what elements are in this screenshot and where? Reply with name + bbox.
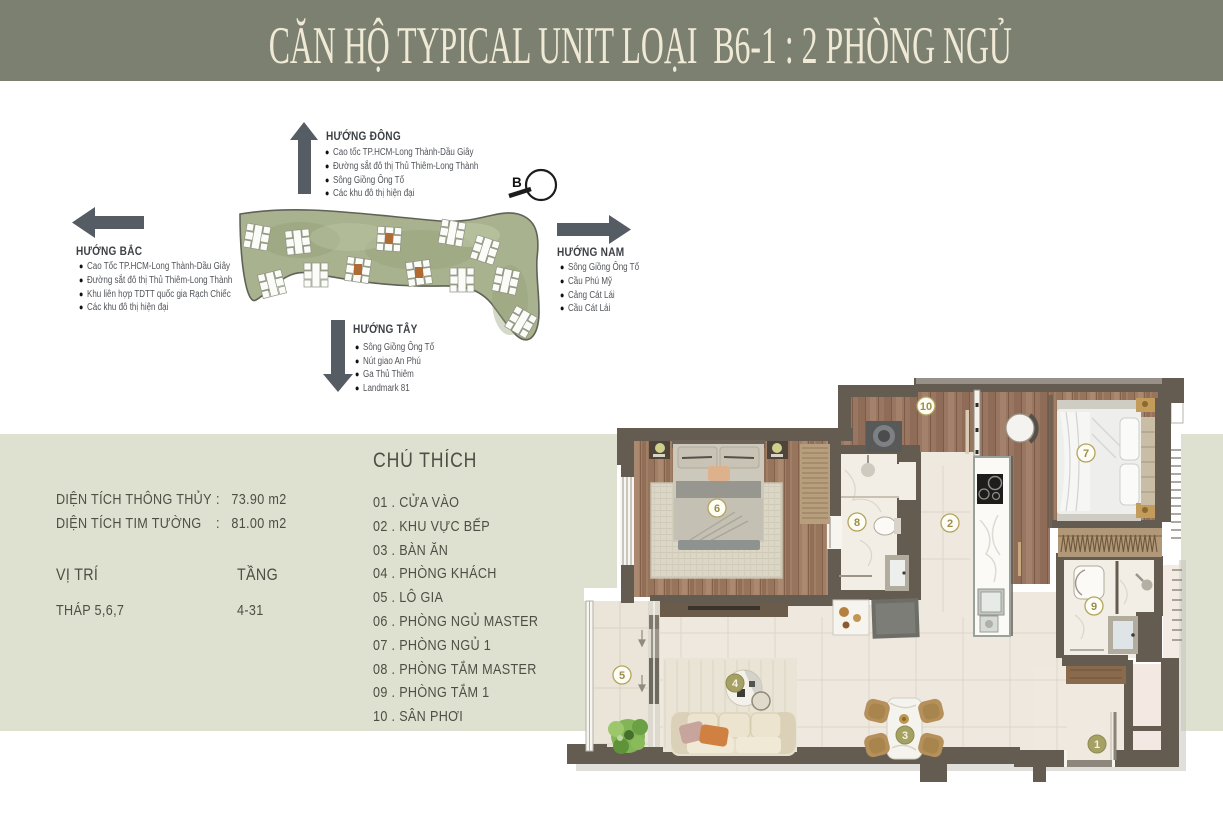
svg-text:8: 8 [854,517,860,529]
svg-text:B: B [512,175,522,190]
svg-text:1: 1 [1094,739,1100,751]
svg-text:10: 10 [920,401,932,413]
svg-text:2: 2 [947,518,953,530]
svg-text:7: 7 [1083,448,1089,460]
svg-text:5: 5 [619,670,625,682]
svg-text:4: 4 [732,678,739,690]
svg-text:9: 9 [1091,601,1097,613]
svg-text:3: 3 [902,730,908,742]
svg-text:6: 6 [714,503,720,515]
